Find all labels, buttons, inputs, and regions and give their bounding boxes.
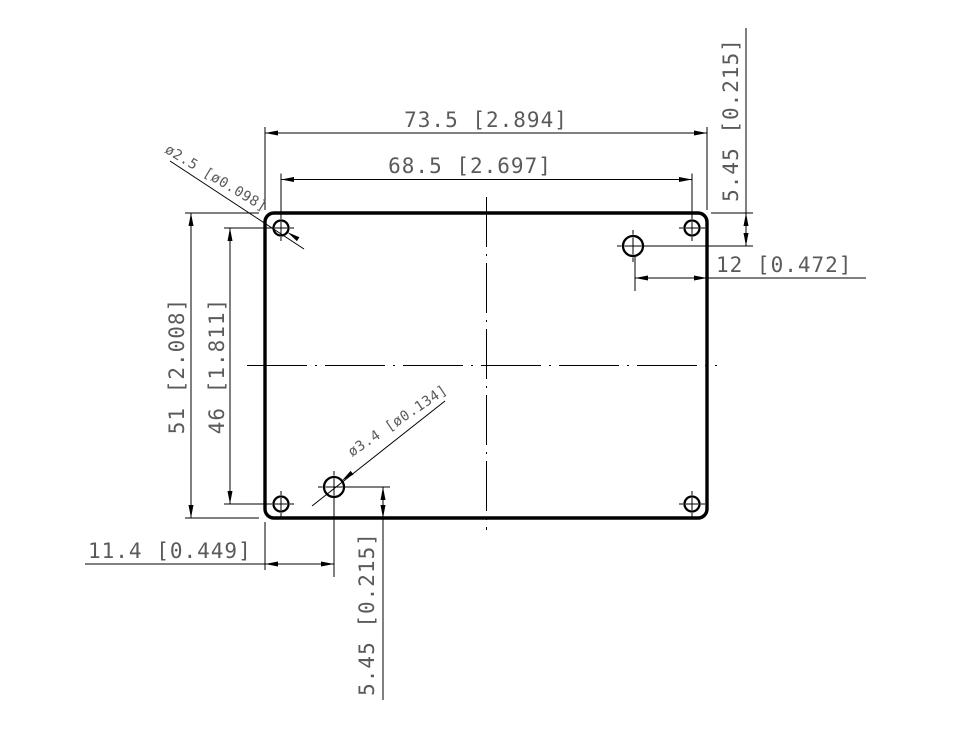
leader-label-offset-hole: ø3.4 [ø0.134]: [345, 382, 450, 460]
leader-label-corner-hole: ø2.5 [ø0.098]: [162, 142, 270, 215]
leader-arrow: [342, 471, 354, 481]
dim-label-hole-span-height: 46 [1.811]: [205, 298, 229, 434]
dim-bottom-left-hole-horizontal: 11.4 [0.449]: [85, 498, 334, 577]
leader-line: [170, 161, 304, 249]
leader-corner-hole-diameter: ø2.5 [ø0.098]: [162, 142, 304, 249]
drawing-canvas: 73.5 [2.894] 68.5 [2.697] 5.45 [0.215] 1…: [0, 0, 974, 731]
dim-label-top-right-vertical: 5.45 [0.215]: [719, 38, 743, 202]
plate-centerlines: [247, 197, 717, 530]
dim-label-bottom-left-horizontal: 11.4 [0.449]: [88, 539, 252, 563]
dim-label-bottom-left-vertical: 5.45 [0.215]: [355, 532, 379, 696]
dim-label-overall-width: 73.5 [2.894]: [404, 108, 568, 132]
dim-label-hole-span-width: 68.5 [2.697]: [388, 154, 552, 178]
dim-label-top-right-horizontal: 12 [0.472]: [716, 253, 852, 277]
leader-line: [312, 401, 445, 506]
dim-top-right-hole-horizontal: 12 [0.472]: [635, 253, 866, 291]
engineering-drawing: 73.5 [2.894] 68.5 [2.697] 5.45 [0.215] 1…: [0, 0, 974, 731]
dim-label-overall-height: 51 [2.008]: [165, 298, 189, 434]
